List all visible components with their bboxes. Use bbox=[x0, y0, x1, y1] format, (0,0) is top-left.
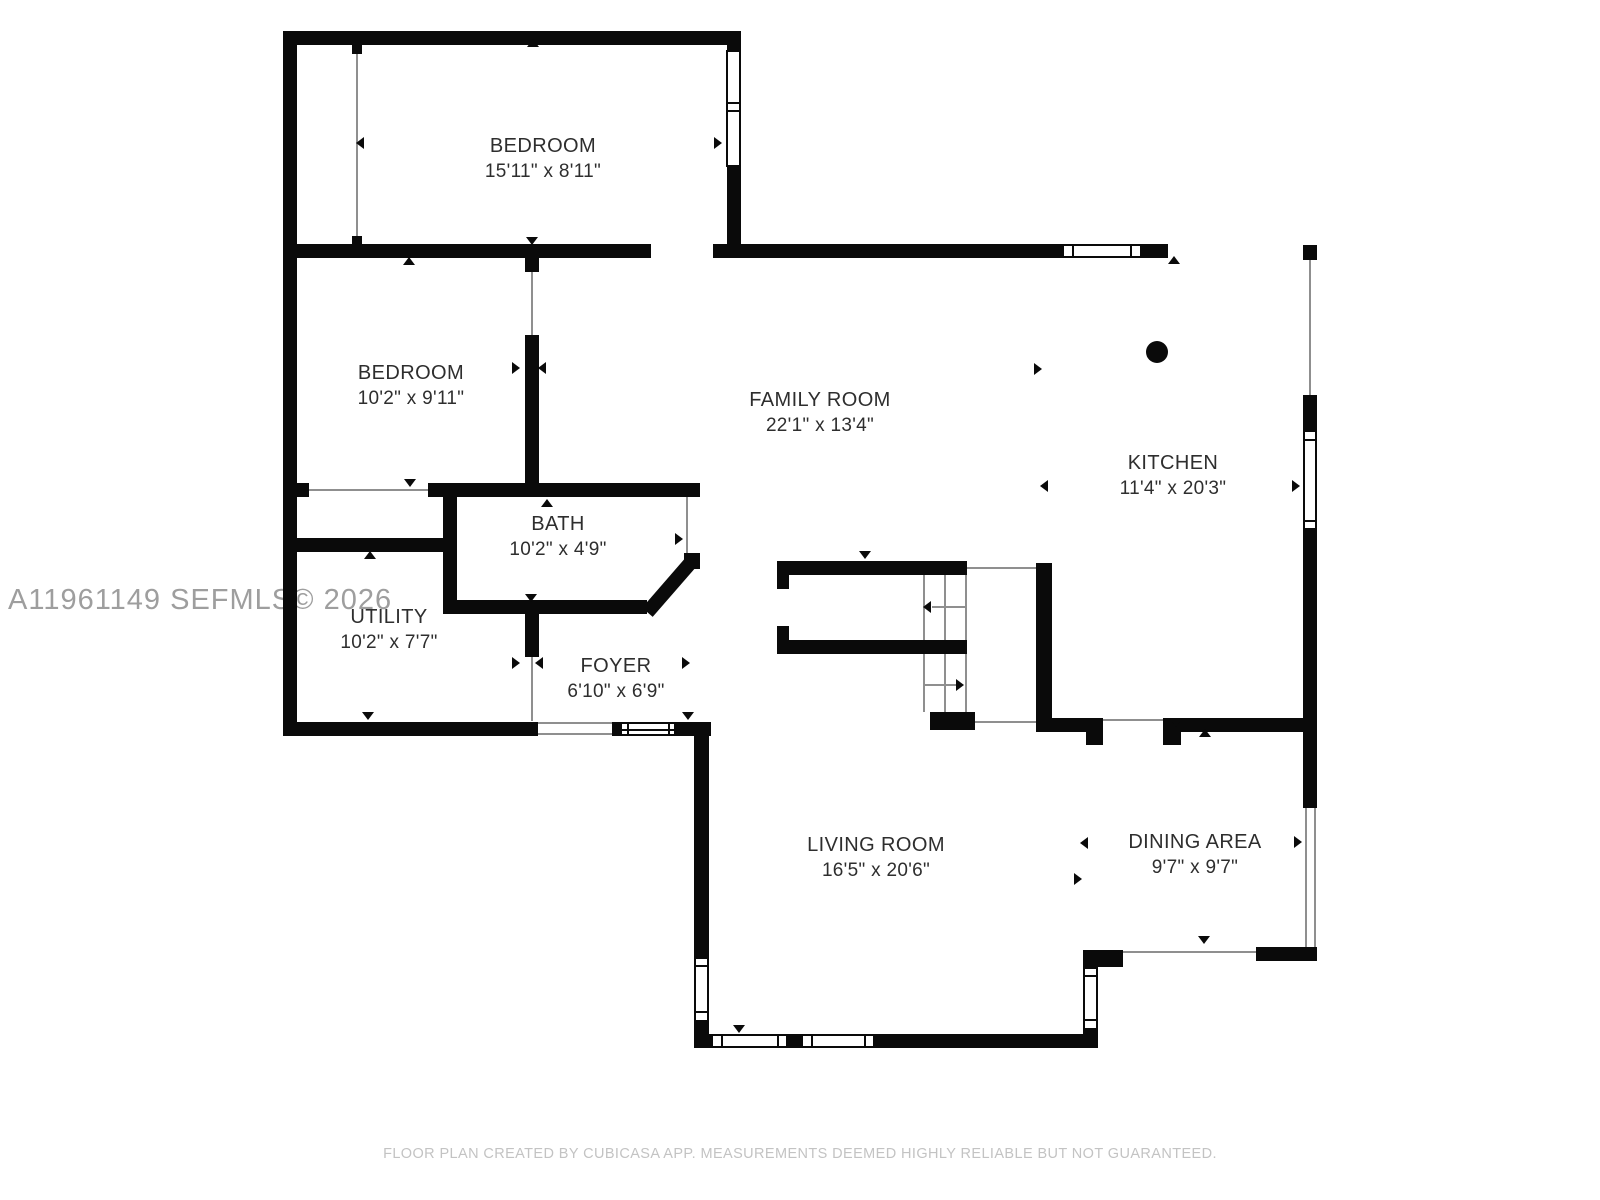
stair-arrow-line bbox=[932, 606, 965, 608]
wall-segment bbox=[283, 722, 538, 736]
window bbox=[711, 1034, 788, 1048]
window bbox=[1083, 967, 1098, 1030]
room-name: DINING AREA bbox=[1128, 829, 1261, 855]
direction-arrow-down bbox=[362, 712, 374, 720]
opening-line bbox=[1123, 951, 1256, 953]
wall-segment bbox=[684, 553, 700, 569]
direction-arrow-up bbox=[541, 499, 553, 507]
direction-arrow-left bbox=[286, 365, 294, 377]
wall-segment bbox=[297, 538, 443, 552]
stair-arrow-head-left bbox=[923, 601, 931, 613]
stair-arrow-line bbox=[925, 684, 958, 686]
wall-segment bbox=[525, 258, 539, 272]
direction-arrow-left bbox=[535, 657, 543, 669]
room-dimensions: 11'4" x 20'3" bbox=[1120, 476, 1227, 502]
window-muntin bbox=[1304, 439, 1316, 441]
room-label-family-room: FAMILY ROOM 22'1" x 13'4" bbox=[749, 387, 890, 439]
direction-arrow-left bbox=[696, 871, 704, 883]
direction-arrow-up bbox=[1168, 256, 1180, 264]
direction-arrow-down bbox=[404, 479, 416, 487]
opening-line bbox=[538, 722, 614, 724]
direction-arrow-down bbox=[1198, 936, 1210, 944]
wall-segment bbox=[283, 31, 297, 736]
opening-line bbox=[686, 497, 688, 554]
direction-arrow-left bbox=[356, 137, 364, 149]
wall-segment bbox=[727, 167, 741, 244]
wall-segment bbox=[443, 497, 457, 600]
stair-wall bbox=[777, 561, 967, 575]
room-dimensions: 10'2" x 7'7" bbox=[340, 630, 437, 656]
room-label-bedroom-2: BEDROOM 10'2" x 9'11" bbox=[358, 360, 465, 412]
wall-segment bbox=[1163, 718, 1306, 732]
room-label-foyer: FOYER 6'10" x 6'9" bbox=[567, 653, 664, 705]
room-name: FOYER bbox=[567, 653, 664, 679]
opening-line bbox=[1305, 808, 1307, 947]
window-muntin bbox=[1072, 245, 1074, 257]
window-muntin bbox=[1304, 520, 1316, 522]
stair-wall bbox=[777, 640, 967, 654]
window-muntin bbox=[777, 1035, 779, 1047]
wall-segment bbox=[443, 600, 647, 614]
window-muntin bbox=[727, 102, 740, 104]
direction-arrow-left bbox=[1040, 480, 1048, 492]
room-label-dining-area: DINING AREA 9'7" x 9'7" bbox=[1128, 829, 1261, 881]
room-label-bedroom-1: BEDROOM 15'11" x 8'11" bbox=[485, 133, 601, 185]
wall-segment bbox=[727, 31, 741, 50]
window-muntin bbox=[1130, 245, 1132, 257]
wall-segment bbox=[1303, 395, 1317, 430]
wall-segment bbox=[428, 483, 700, 497]
room-dimensions: 6'10" x 6'9" bbox=[567, 679, 664, 705]
room-label-bath: BATH 10'2" x 4'9" bbox=[509, 511, 606, 563]
direction-arrow-up bbox=[403, 257, 415, 265]
room-name: BEDROOM bbox=[485, 133, 601, 159]
room-label-kitchen: KITCHEN 11'4" x 20'3" bbox=[1120, 450, 1227, 502]
wall-segment bbox=[1083, 1030, 1098, 1048]
opening-line bbox=[1314, 808, 1316, 947]
window-muntin bbox=[721, 1035, 723, 1047]
wall-segment bbox=[525, 335, 539, 495]
direction-arrow-right bbox=[675, 533, 683, 545]
direction-arrow-right bbox=[1034, 363, 1042, 375]
mls-watermark: A11961149 SEFMLS© 2026 bbox=[8, 584, 392, 617]
wall-segment bbox=[1036, 563, 1052, 722]
wall-segment bbox=[352, 45, 362, 54]
direction-arrow-right bbox=[1294, 836, 1302, 848]
wall-segment bbox=[741, 244, 1062, 258]
floor-plan: A11961149 SEFMLS© 2026 FLOOR PLAN CREATE… bbox=[0, 0, 1600, 1200]
opening-line bbox=[1309, 260, 1311, 395]
room-name: KITCHEN bbox=[1120, 450, 1227, 476]
wall-segment bbox=[1083, 950, 1123, 967]
window bbox=[726, 50, 741, 167]
wall-segment bbox=[297, 483, 309, 497]
direction-arrow-right bbox=[1074, 873, 1082, 885]
column-marker bbox=[1146, 341, 1168, 363]
front-door bbox=[620, 722, 676, 736]
room-dimensions: 16'5" x 20'6" bbox=[807, 858, 945, 884]
window-muntin bbox=[864, 1035, 866, 1047]
footer-disclaimer: FLOOR PLAN CREATED BY CUBICASA APP. MEAS… bbox=[0, 1146, 1600, 1162]
wall-segment bbox=[352, 236, 362, 244]
room-dimensions: 10'2" x 9'11" bbox=[358, 386, 465, 412]
direction-arrow-left bbox=[538, 362, 546, 374]
direction-arrow-down bbox=[859, 551, 871, 559]
direction-arrow-up bbox=[364, 551, 376, 559]
wall-segment bbox=[1142, 244, 1168, 258]
direction-arrow-right bbox=[682, 657, 690, 669]
opening-line bbox=[531, 657, 533, 721]
wall-segment bbox=[694, 722, 709, 957]
direction-arrow-left bbox=[286, 655, 294, 667]
wall-segment bbox=[1036, 718, 1103, 732]
direction-arrow-left bbox=[1080, 837, 1088, 849]
door-frame-line bbox=[621, 729, 675, 731]
guide-line bbox=[967, 567, 1036, 569]
stair-landing bbox=[930, 712, 975, 730]
window bbox=[801, 1034, 875, 1048]
direction-arrow-right bbox=[512, 362, 520, 374]
opening-line bbox=[531, 272, 533, 335]
guide-line bbox=[975, 721, 1036, 723]
window-muntin bbox=[695, 965, 708, 967]
room-label-living-room: LIVING ROOM 16'5" x 20'6" bbox=[807, 832, 945, 884]
wall-segment bbox=[1303, 245, 1317, 260]
window-muntin bbox=[1084, 975, 1097, 977]
room-name: BATH bbox=[509, 511, 606, 537]
door-jamb bbox=[1163, 732, 1181, 745]
stair-wall bbox=[777, 561, 789, 589]
direction-arrow-right bbox=[714, 137, 722, 149]
door-jamb bbox=[1086, 732, 1103, 745]
room-dimensions: 10'2" x 4'9" bbox=[509, 537, 606, 563]
room-label-utility: UTILITY 10'2" x 7'7" bbox=[340, 604, 437, 656]
stair-arrow-head-right bbox=[956, 679, 964, 691]
opening-line bbox=[538, 733, 614, 735]
direction-arrow-down bbox=[525, 594, 537, 602]
direction-arrow-up bbox=[1199, 729, 1211, 737]
wall-segment bbox=[1256, 947, 1317, 961]
room-name: UTILITY bbox=[340, 604, 437, 630]
window bbox=[694, 957, 709, 1022]
window-muntin bbox=[1084, 1019, 1097, 1021]
window-muntin bbox=[695, 1011, 708, 1013]
wall-segment bbox=[1303, 530, 1317, 808]
window-muntin bbox=[811, 1035, 813, 1047]
wall-segment bbox=[283, 31, 741, 45]
room-dimensions: 9'7" x 9'7" bbox=[1128, 855, 1261, 881]
direction-arrow-down bbox=[733, 1025, 745, 1033]
direction-arrow-up bbox=[527, 39, 539, 47]
wall-segment bbox=[525, 607, 539, 657]
direction-arrow-right bbox=[1292, 480, 1300, 492]
door-frame-line bbox=[668, 723, 670, 735]
direction-arrow-down bbox=[682, 712, 694, 720]
direction-arrow-up bbox=[858, 247, 870, 255]
room-name: BEDROOM bbox=[358, 360, 465, 386]
direction-arrow-right bbox=[512, 657, 520, 669]
room-dimensions: 22'1" x 13'4" bbox=[749, 413, 890, 439]
opening-line bbox=[1103, 719, 1163, 721]
direction-arrow-down bbox=[1170, 719, 1182, 727]
direction-arrow-down bbox=[526, 237, 538, 245]
opening-line bbox=[309, 489, 428, 491]
window-muntin bbox=[727, 110, 740, 112]
room-dimensions: 15'11" x 8'11" bbox=[485, 159, 601, 185]
window bbox=[1062, 244, 1142, 258]
window bbox=[1303, 430, 1317, 530]
room-name: FAMILY ROOM bbox=[749, 387, 890, 413]
wall-segment bbox=[713, 244, 741, 258]
wall-segment bbox=[283, 244, 651, 258]
room-name: LIVING ROOM bbox=[807, 832, 945, 858]
